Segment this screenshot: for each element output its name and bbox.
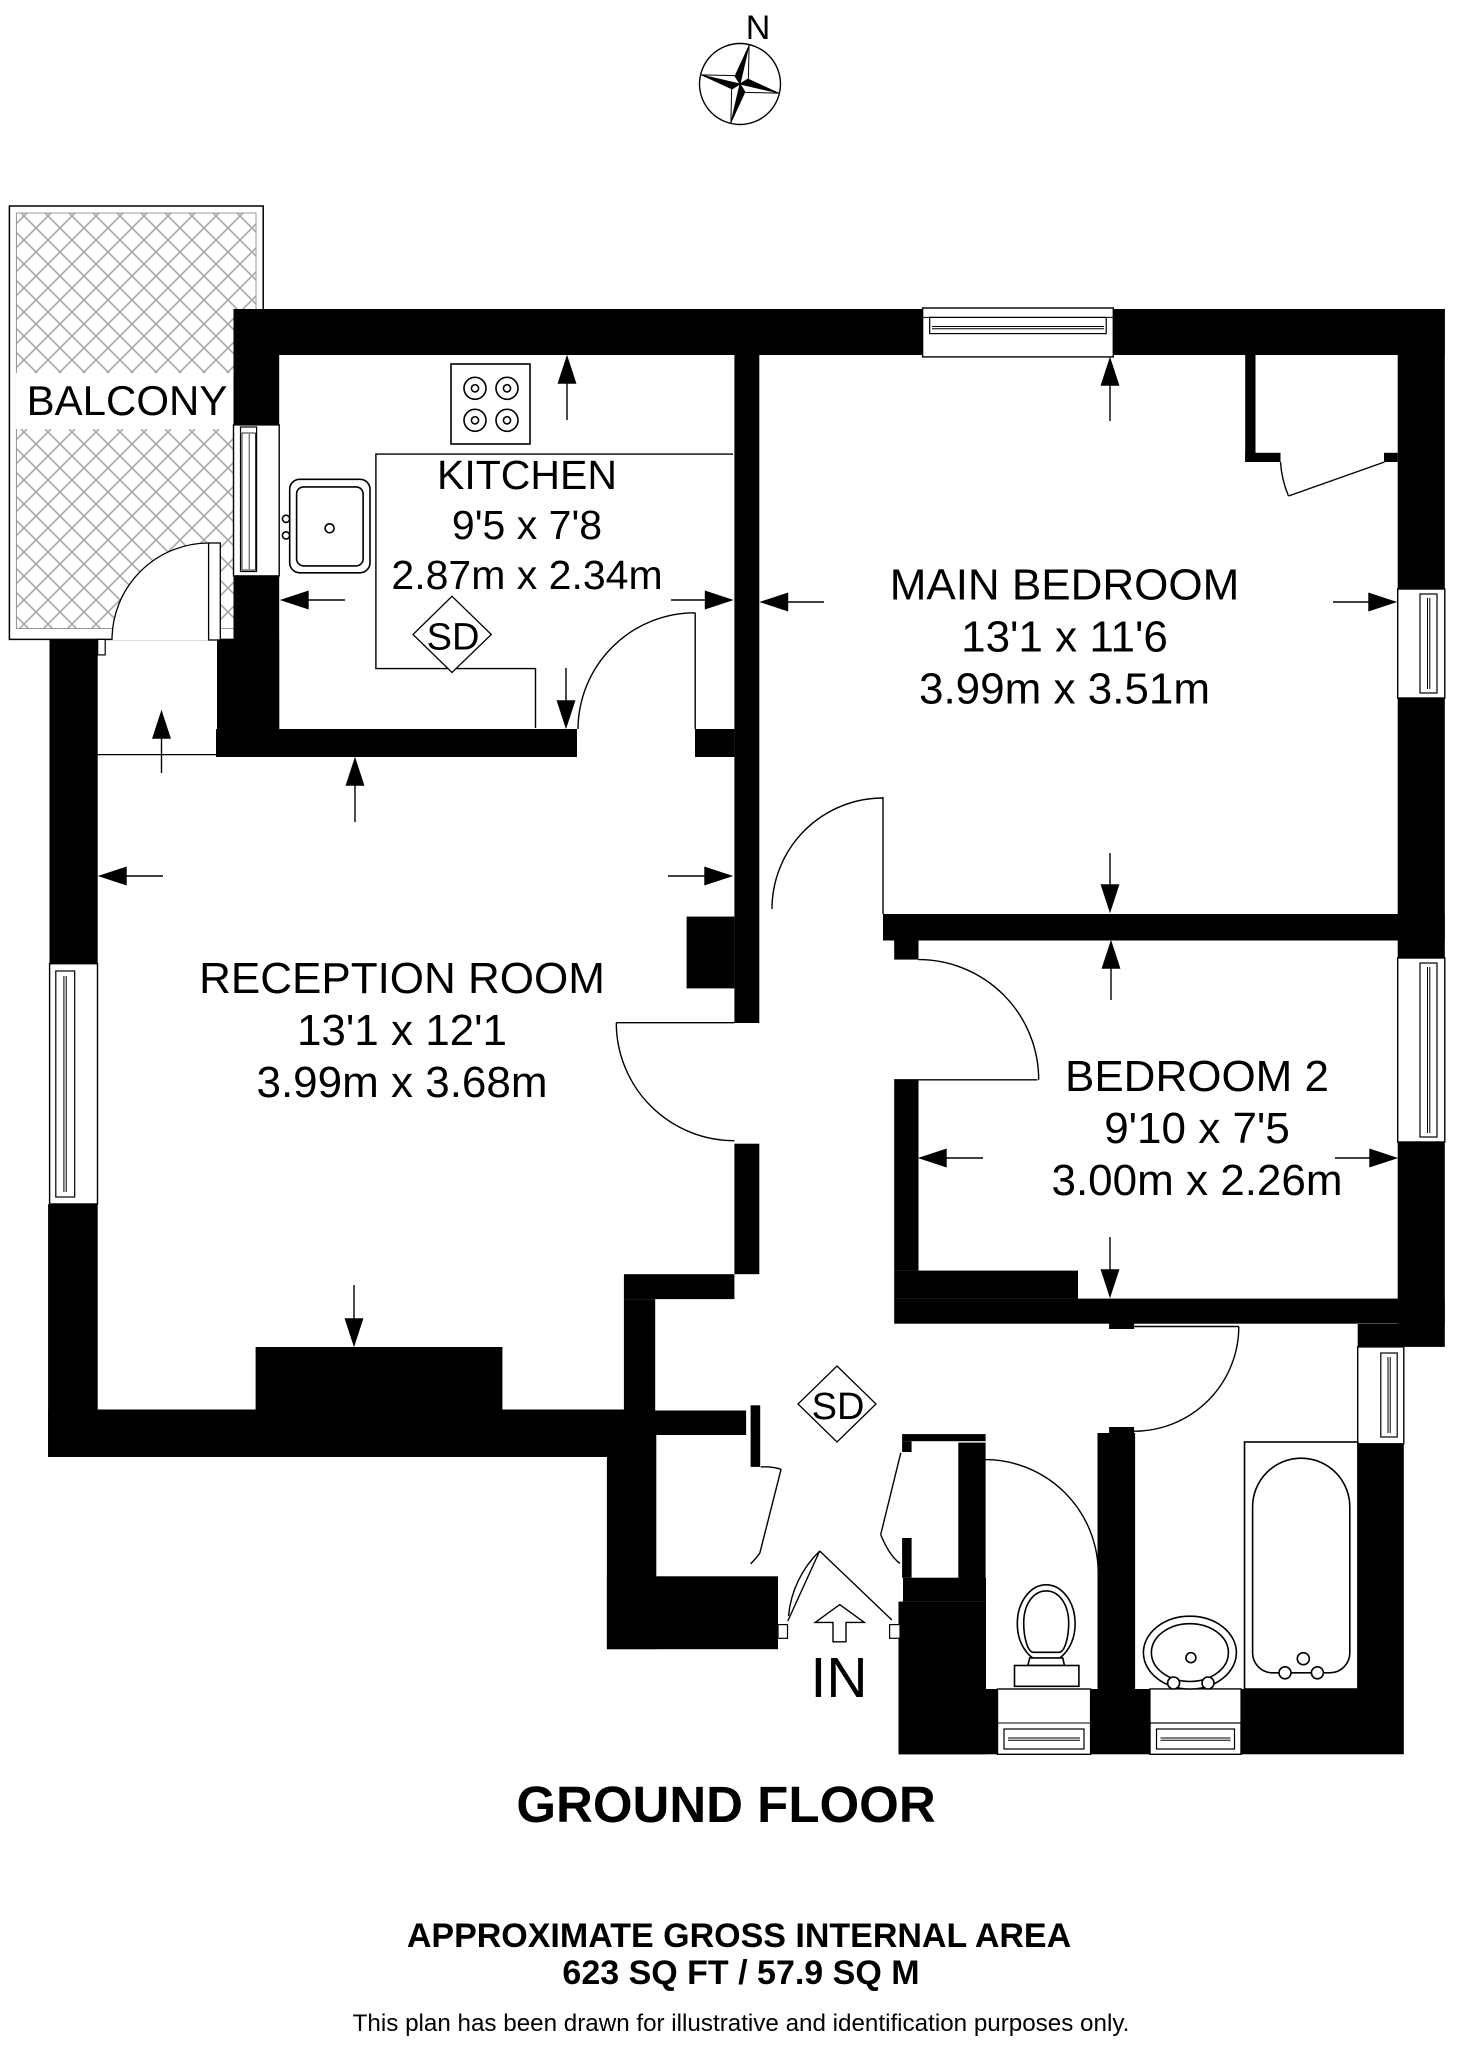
- svg-text:9'5 x 7'8: 9'5 x 7'8: [452, 502, 602, 548]
- svg-text:APPROXIMATE GROSS INTERNAL ARE: APPROXIMATE GROSS INTERNAL AREA: [407, 1917, 1071, 1955]
- svg-text:9'10 x 7'5: 9'10 x 7'5: [1104, 1104, 1290, 1153]
- svg-text:KITCHEN: KITCHEN: [437, 452, 617, 498]
- svg-text:3.00m x 2.26m: 3.00m x 2.26m: [1051, 1156, 1342, 1205]
- svg-text:2.87m x 2.34m: 2.87m x 2.34m: [391, 552, 662, 598]
- svg-text:13'1 x 12'1: 13'1 x 12'1: [297, 1006, 507, 1055]
- svg-text:623 SQ FT / 57.9 SQ M: 623 SQ FT / 57.9 SQ M: [562, 1954, 919, 1992]
- svg-text:RECEPTION ROOM: RECEPTION ROOM: [199, 954, 605, 1003]
- svg-text:IN: IN: [811, 1646, 868, 1710]
- svg-text:This plan has been drawn for i: This plan has been drawn for illustrativ…: [353, 2010, 1130, 2037]
- svg-text:SD: SD: [812, 1386, 865, 1428]
- svg-text:SD: SD: [427, 617, 480, 659]
- svg-text:3.99m x 3.68m: 3.99m x 3.68m: [256, 1058, 547, 1107]
- svg-text:MAIN BEDROOM: MAIN BEDROOM: [890, 561, 1240, 610]
- svg-text:13'1 x 11'6: 13'1 x 11'6: [961, 613, 1168, 662]
- svg-text:BALCONY: BALCONY: [27, 377, 228, 424]
- svg-text:GROUND FLOOR: GROUND FLOOR: [516, 1776, 935, 1833]
- svg-text:BEDROOM 2: BEDROOM 2: [1065, 1052, 1329, 1101]
- svg-text:N: N: [746, 9, 771, 47]
- svg-text:3.99m x 3.51m: 3.99m x 3.51m: [919, 665, 1210, 714]
